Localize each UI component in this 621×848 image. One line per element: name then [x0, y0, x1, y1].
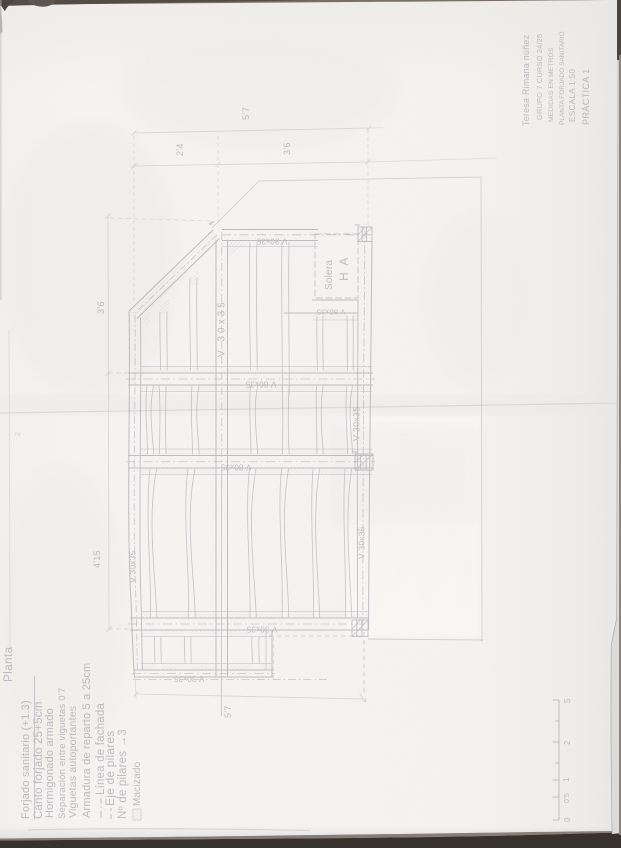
- svg-text:5’7: 5’7: [223, 705, 233, 718]
- svg-text:V 30x35: V 30x35: [217, 299, 228, 357]
- svg-text:4’15: 4’15: [92, 550, 102, 568]
- svg-text:V 30x35: V 30x35: [173, 674, 204, 683]
- svg-text:V 30x35: V 30x35: [128, 550, 138, 583]
- svg-text:V 30x35: V 30x35: [352, 407, 362, 441]
- svg-text:Solera: Solera: [324, 260, 335, 290]
- svg-text:Nº de pilares →3: Nº de pilares →3: [117, 729, 129, 819]
- svg-text:1: 1: [562, 777, 571, 782]
- svg-text:3’6: 3’6: [282, 142, 292, 155]
- svg-text:3’6: 3’6: [96, 301, 106, 314]
- svg-text:MEDIDAS EN METROS: MEDIDAS EN METROS: [548, 47, 555, 122]
- svg-text:PLANTA FORJADO SANITARIO: PLANTA FORJADO SANITARIO: [559, 31, 566, 125]
- svg-text:0’5: 0’5: [564, 793, 571, 803]
- svg-text:5’7: 5’7: [241, 107, 252, 120]
- svg-text:H A: H A: [337, 256, 351, 281]
- svg-text:2’4: 2’4: [175, 143, 185, 156]
- svg-text:5: 5: [563, 698, 572, 703]
- svg-text:Forjado sanitario (+1.3): Forjado sanitario (+1.3): [20, 700, 32, 819]
- svg-text:ESCALA 1:50: ESCALA 1:50: [568, 69, 577, 122]
- svg-text:Teresa Rimana núñez: Teresa Rimana núñez: [521, 35, 531, 126]
- svg-text:0: 0: [563, 817, 572, 822]
- svg-text:GRUPO 7 CURSO 24/25: GRUPO 7 CURSO 24/25: [535, 34, 544, 120]
- svg-text:2: 2: [15, 432, 22, 436]
- svg-text:Macizado: Macizado: [132, 761, 143, 806]
- svg-text:Planta: Planta: [3, 646, 15, 682]
- svg-text:Viguetas autoportantes: Viguetas autoportantes: [67, 706, 79, 818]
- svg-text:Armadura de reparto 5 a 25cm: Armadura de reparto 5 a 25cm: [81, 663, 93, 818]
- svg-text:2: 2: [563, 740, 572, 745]
- svg-text:PRÁCTICA 1: PRÁCTICA 1: [581, 68, 591, 125]
- svg-text:V 30x35: V 30x35: [357, 526, 367, 559]
- svg-text:Hormigonado armado: Hormigonado armado: [44, 708, 56, 818]
- svg-text:Eje de pilares: Eje de pilares: [103, 730, 117, 806]
